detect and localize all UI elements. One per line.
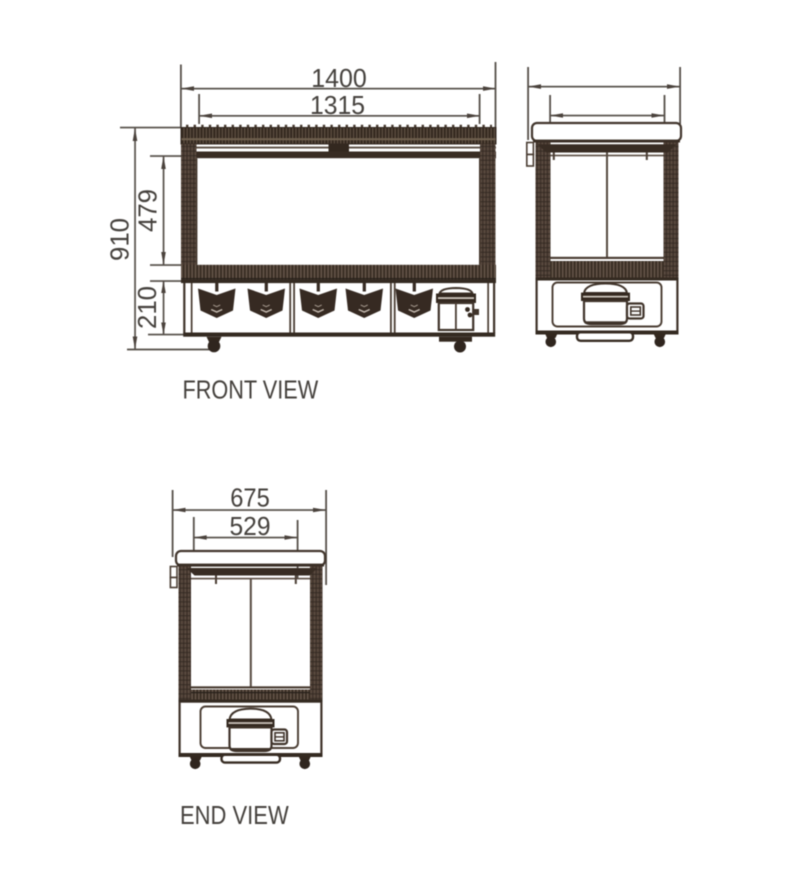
svg-text:210: 210 — [134, 286, 162, 329]
svg-text:END VIEW: END VIEW — [180, 800, 289, 830]
svg-text:1400: 1400 — [311, 65, 367, 93]
svg-text:FRONT VIEW: FRONT VIEW — [183, 374, 319, 404]
svg-text:479: 479 — [135, 189, 163, 232]
svg-text:529: 529 — [230, 513, 271, 541]
svg-text:1315: 1315 — [310, 92, 365, 120]
svg-text:910: 910 — [107, 218, 135, 261]
svg-text:675: 675 — [230, 485, 270, 513]
